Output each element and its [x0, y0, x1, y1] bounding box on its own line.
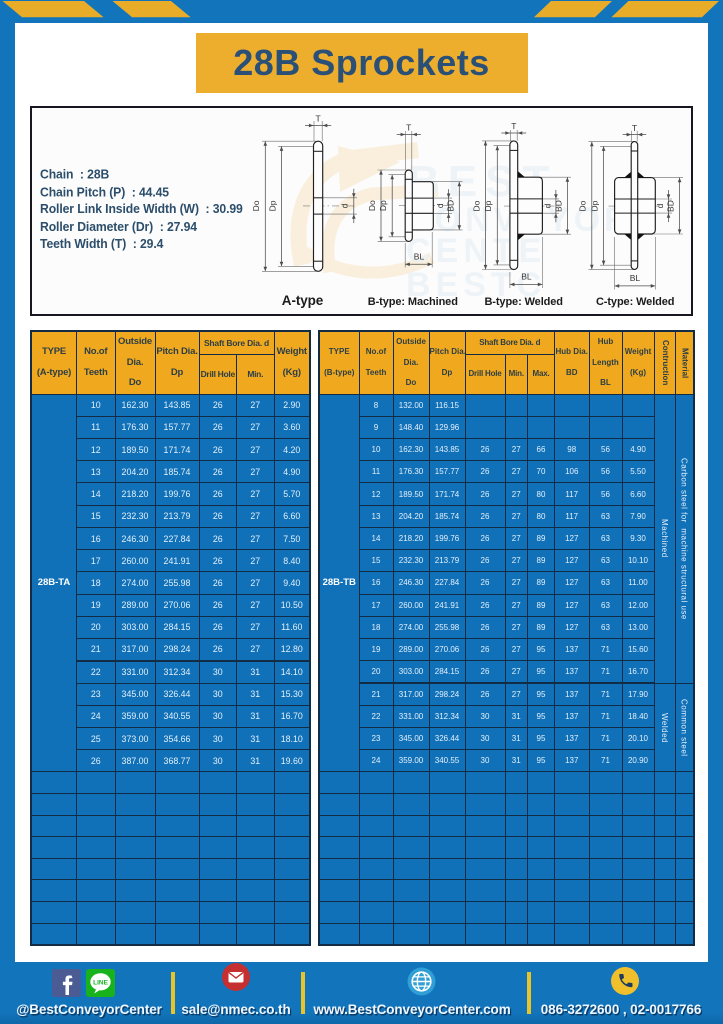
svg-text:BL: BL [521, 272, 532, 282]
svg-text:Dp: Dp [267, 200, 277, 211]
svg-text:d: d [435, 203, 445, 208]
svg-text:Do: Do [578, 200, 588, 211]
svg-text:d: d [340, 203, 350, 208]
svg-text:B-type: Machined: B-type: Machined [368, 296, 458, 308]
svg-text:Do: Do [367, 200, 377, 211]
svg-text:BL: BL [414, 252, 425, 262]
svg-text:BD: BD [666, 200, 676, 212]
svg-text:Dp: Dp [590, 200, 600, 211]
svg-text:T: T [511, 121, 516, 131]
svg-text:Dp: Dp [378, 200, 388, 211]
svg-text:T: T [632, 123, 637, 133]
svg-text:LINE: LINE [93, 980, 108, 987]
svg-text:Do: Do [251, 200, 261, 211]
svg-text:A-type: A-type [282, 293, 324, 308]
svg-text:BL: BL [630, 273, 641, 283]
svg-text:Dp: Dp [483, 200, 493, 211]
svg-text:T: T [315, 114, 320, 124]
svg-text:T: T [406, 123, 411, 133]
svg-text:BD: BD [446, 200, 456, 212]
svg-text:d: d [655, 203, 665, 208]
svg-text:B-type: Welded: B-type: Welded [484, 296, 562, 308]
svg-text:Do: Do [471, 200, 481, 211]
svg-text:BD: BD [554, 200, 564, 212]
svg-text:d: d [543, 203, 553, 208]
svg-text:C-type: Welded: C-type: Welded [596, 296, 674, 308]
